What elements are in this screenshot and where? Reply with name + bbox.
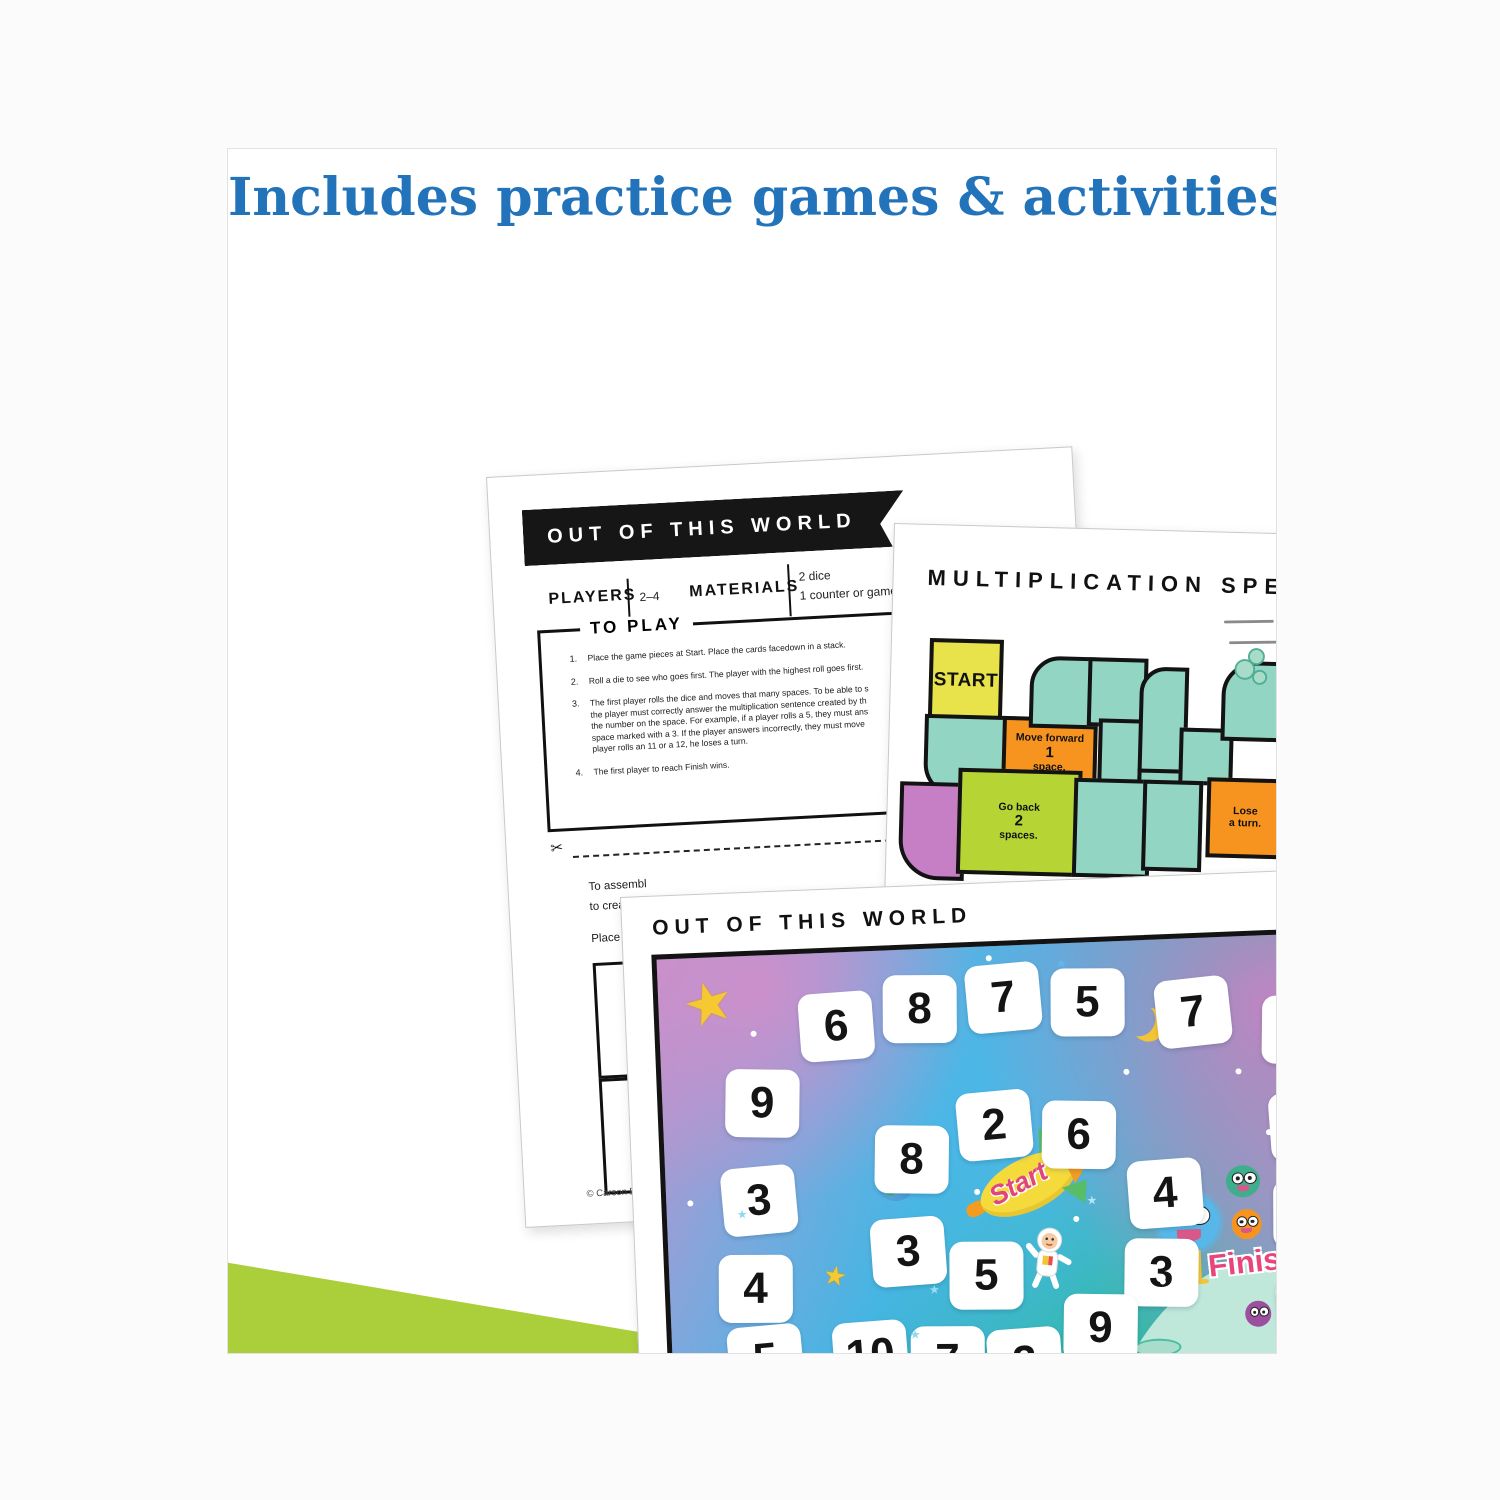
materials-label: MATERIALS	[689, 578, 800, 602]
star-dot	[1073, 1216, 1079, 1222]
board-tile: 7	[1153, 974, 1234, 1050]
monster-icon	[1225, 1164, 1260, 1197]
board-title: OUT OF THIS WORLD	[652, 904, 973, 941]
board-tile: 4	[1261, 995, 1277, 1064]
board-tile: 7	[911, 1326, 985, 1354]
track-space: START	[927, 638, 1004, 723]
instructions-title: OUT OF THIS WORLD	[523, 509, 858, 549]
board-tile: 5	[949, 1241, 1023, 1310]
star-icon: ★	[821, 1259, 849, 1293]
crescent-moon-icon	[1119, 999, 1159, 1039]
board-tile: 8	[874, 1125, 948, 1194]
assembly-text: To assembl	[588, 878, 647, 893]
step-number: 2.	[571, 675, 590, 687]
headline-highlighted: practice games & activities	[496, 167, 1277, 228]
materials-list: 2 dice 1 counter or game	[798, 563, 897, 606]
step-number: 4.	[575, 766, 594, 778]
headline-prefix: Includes	[228, 167, 496, 228]
track-space	[1141, 780, 1204, 873]
board-tile: 4	[719, 1255, 793, 1324]
race-car-icon	[1220, 589, 1277, 730]
star-dot	[1235, 1068, 1241, 1074]
board-tile: 9	[1267, 1089, 1277, 1163]
star-dot	[1123, 1068, 1129, 1074]
board-tile: 3	[869, 1215, 947, 1289]
board-tile: 8	[883, 975, 957, 1044]
star-dot	[687, 1200, 693, 1206]
board-tile: 5	[1050, 969, 1124, 1038]
track-space	[1071, 778, 1151, 879]
board-tile: 3	[1124, 1238, 1198, 1307]
star-dot	[1160, 1278, 1166, 1284]
screenshot: Includes practice games & activities OUT…	[0, 0, 1500, 1500]
monster-icon	[1231, 1208, 1262, 1239]
star-dot	[750, 1030, 756, 1036]
board-tile: 9	[725, 1069, 799, 1138]
step-text: The first player rolls the dice and move…	[590, 683, 872, 755]
finish-label: Finish	[1206, 1239, 1277, 1285]
board-tile: 2	[986, 1325, 1064, 1354]
star-dot	[986, 955, 992, 961]
board-tile: 2	[954, 1088, 1033, 1163]
board-tile: 6	[1273, 1180, 1277, 1249]
board-tile: 6	[797, 989, 875, 1063]
step-text: Place the game pieces at Start. Place th…	[587, 639, 846, 664]
mini-star-icon: ★	[910, 1328, 921, 1342]
board-tile: 4	[1126, 1157, 1204, 1231]
star-icon: ★	[675, 965, 742, 1042]
board-tile: 10	[831, 1318, 909, 1354]
board-tile: 5	[726, 1322, 805, 1354]
step-number: 1.	[569, 653, 588, 665]
board-tile: 9	[1063, 1294, 1137, 1354]
board-page: OUT OF THIS WORLD ★ ★	[620, 866, 1277, 1354]
board-tile: 3	[719, 1164, 798, 1239]
star-dot	[848, 1005, 854, 1011]
scissors-icon: ✂	[549, 838, 564, 858]
track-space: Losea turn.	[1205, 778, 1277, 860]
product-card: Includes practice games & activities OUT…	[227, 148, 1277, 1354]
step-text: The first player to reach Finish wins.	[593, 759, 729, 778]
board-tile: 7	[963, 960, 1042, 1035]
mini-star-icon: ★	[737, 1207, 748, 1221]
mini-star-icon: ★	[1056, 956, 1067, 970]
crater	[1133, 1337, 1182, 1354]
game-board: ★ ★ Start	[651, 926, 1277, 1354]
mini-star-icon: ★	[1086, 1193, 1097, 1207]
mini-star-icon: ★	[929, 1283, 940, 1297]
star-dot	[1266, 1129, 1272, 1135]
track-space: Go back2spaces.	[955, 767, 1082, 876]
step-text: Roll a die to see who goes first. The pl…	[589, 661, 864, 687]
headline: Includes practice games & activities	[228, 167, 1276, 228]
board-tile: 6	[1042, 1101, 1116, 1170]
players-value: 2–4	[639, 589, 660, 604]
astronaut-icon	[1025, 1225, 1074, 1291]
players-label: PLAYERS	[548, 586, 637, 609]
instructions-banner: OUT OF THIS WORLD	[522, 490, 906, 566]
